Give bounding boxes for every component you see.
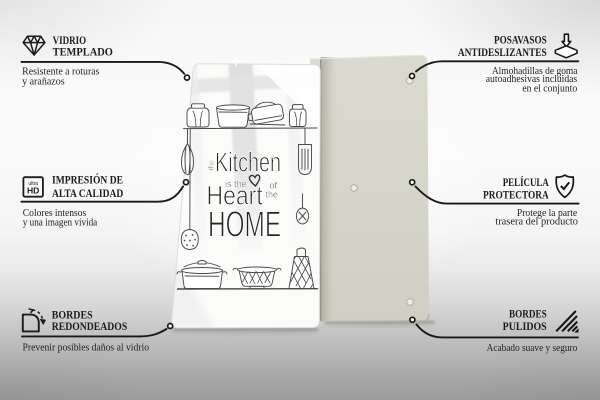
svg-text:TEMPLADO: TEMPLADO bbox=[53, 46, 114, 59]
svg-text:y una imagen vívida: y una imagen vívida bbox=[23, 217, 98, 229]
svg-text:Kitchen: Kitchen bbox=[215, 147, 281, 178]
svg-text:PROTECTORA: PROTECTORA bbox=[483, 190, 549, 202]
svg-text:y arañazos: y arañazos bbox=[22, 76, 65, 87]
svg-text:POSAVASOS: POSAVASOS bbox=[494, 35, 547, 47]
svg-text:REDONDEADOS: REDONDEADOS bbox=[52, 320, 128, 333]
svg-text:PULIDOS: PULIDOS bbox=[503, 320, 547, 333]
svg-text:ANTIDESLIZANTES: ANTIDESLIZANTES bbox=[458, 47, 547, 59]
svg-text:Prevenir posibles daños al vid: Prevenir posibles daños al vidrio bbox=[23, 342, 150, 354]
svg-text:Acabado suave y seguro: Acabado suave y seguro bbox=[487, 343, 578, 354]
svg-text:ALTA CALIDAD: ALTA CALIDAD bbox=[52, 187, 123, 200]
svg-text:IMPRESIÓN DE: IMPRESIÓN DE bbox=[52, 173, 123, 186]
svg-text:PELÍCULA: PELÍCULA bbox=[503, 176, 549, 189]
svg-text:HOME: HOME bbox=[208, 204, 281, 245]
svg-text:BORDES: BORDES bbox=[509, 308, 547, 320]
svg-text:HD: HD bbox=[27, 185, 39, 195]
svg-text:the: the bbox=[266, 190, 279, 200]
svg-text:en el conjunto: en el conjunto bbox=[522, 83, 577, 94]
svg-text:trasera del producto: trasera del producto bbox=[495, 217, 578, 228]
